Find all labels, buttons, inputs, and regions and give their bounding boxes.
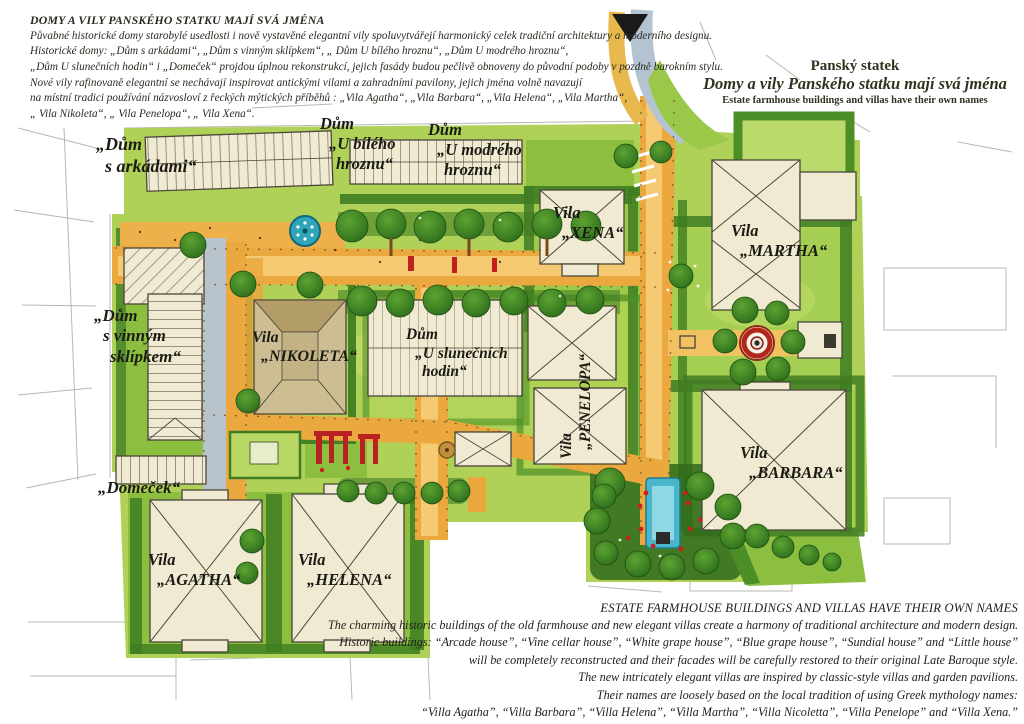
label-vine-cellar-house: „Dům s vinným sklípkem“ bbox=[94, 306, 181, 367]
label-blue-grape-house: Dům „U modrého hroznu“ bbox=[428, 120, 522, 179]
label-vila-penelopa: Vila „PENELOPA“ bbox=[558, 309, 602, 459]
estate-name: Panský statek bbox=[690, 58, 1020, 75]
teal-fountain bbox=[290, 216, 320, 246]
title-block: Panský statek Domy a vily Panského statk… bbox=[690, 58, 1020, 107]
label-vila-agatha: Vila „AGATHA“ bbox=[148, 550, 240, 590]
label-vila-helena: Vila „HELENA“ bbox=[298, 550, 391, 590]
intro-title-english: ESTATE FARMHOUSE BUILDINGS AND VILLAS HA… bbox=[328, 599, 1018, 617]
swimming-pool bbox=[646, 478, 680, 548]
label-vila-barbara: Vila „BARBARA“ bbox=[740, 443, 843, 483]
label-arcade-house: „Dům s arkádami“ bbox=[96, 134, 197, 177]
plan-title-english: Estate farmhouse buildings and villas ha… bbox=[690, 94, 1020, 108]
site-plan-page: DOMY A VILY PANSKÉHO STATKU MAJÍ SVÁ JMÉ… bbox=[0, 0, 1024, 724]
label-sundial-house: Dům „U slunečních hodin“ bbox=[406, 326, 508, 382]
round-fountain-red bbox=[740, 326, 774, 360]
plan-title-czech: Domy a vily Panského statku mají svá jmé… bbox=[690, 75, 1020, 94]
intro-title-czech: DOMY A VILY PANSKÉHO STATKU MAJÍ SVÁ JMÉ… bbox=[30, 12, 750, 29]
building-garden-pavilion-center bbox=[455, 432, 511, 466]
intro-text-czech: DOMY A VILY PANSKÉHO STATKU MAJÍ SVÁ JMÉ… bbox=[30, 12, 750, 123]
label-vila-martha: Vila „MARTHA“ bbox=[731, 221, 827, 261]
label-vila-nikoleta: Vila „NIKOLETA“ bbox=[252, 328, 357, 366]
label-little-house: „Domeček“ bbox=[98, 478, 180, 498]
intro-text-english: ESTATE FARMHOUSE BUILDINGS AND VILLAS HA… bbox=[328, 599, 1018, 722]
label-white-grape-house: Dům „U bílého hroznu“ bbox=[320, 114, 395, 173]
label-vila-xena: Vila „XENA“ bbox=[553, 203, 623, 243]
